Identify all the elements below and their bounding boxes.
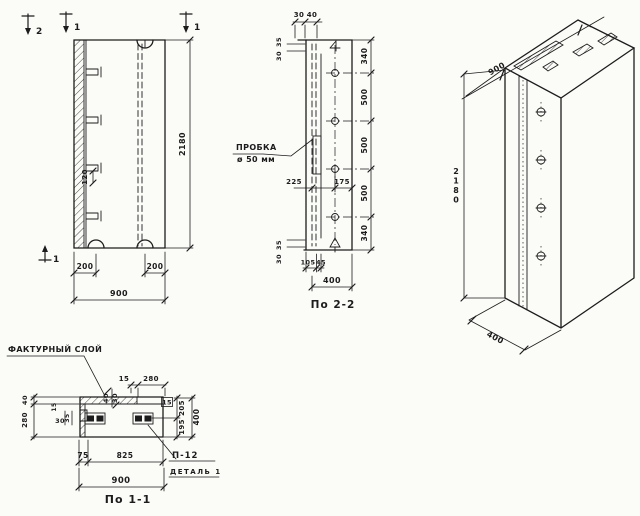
dim-elevation-bottom: 200 200 900 [71, 252, 168, 304]
dim-plug-back-label: 175 [334, 178, 350, 186]
panel-outline [74, 40, 165, 248]
dim-layer-b-label: 30 [111, 393, 119, 403]
channel-p12-left [85, 413, 105, 424]
dim-joint-a-label: 15 [51, 402, 58, 411]
section22-title: По 2-2 [311, 299, 356, 311]
iso-lift-slot-2 [598, 33, 617, 45]
dim-notch-right-label: 200 [147, 262, 164, 271]
section-marker-2-top: 2 [22, 14, 43, 37]
plug-label-line2: ø 50 мм [237, 155, 275, 164]
bottom-notches [88, 240, 153, 248]
plug-callout: ПРОБКА ø 50 мм [233, 139, 313, 164]
iso-dim-height: 2180 [452, 70, 506, 301]
iso-top-face [505, 20, 634, 98]
iso-dim-width: 900 [462, 17, 604, 99]
dim-top-b-label: 40 [307, 11, 318, 19]
dim-right-b-label: 195 [178, 419, 186, 435]
dim-hook-spacing: 120 [81, 168, 96, 186]
dim-notch-left-label: 200 [77, 262, 94, 271]
iso-lift-slot-3 [543, 61, 558, 71]
detail-name-label: ДЕТАЛЬ 1 [170, 468, 222, 476]
drawing-sheet: 120 2180 200 200 900 2 1 1 [0, 0, 640, 516]
dim-top-row: 15 280 [119, 375, 168, 397]
texture-leader-line [7, 356, 106, 398]
dim-top-gap-label: 15 [119, 375, 130, 383]
dim-corner-bot-b-label: 35 [275, 240, 283, 250]
chain-label-1: 500 [360, 89, 369, 106]
marker-1-right-label: 1 [194, 23, 201, 33]
dim-layer-thickness: 40 30 [102, 388, 119, 408]
chain-label-4: 340 [360, 225, 369, 242]
dim-ref-box: 15 [162, 398, 173, 407]
section-marker-1-left: 1 [60, 12, 81, 33]
texture-layer-callout: ФАКТУРНЫЙ СЛОЙ [7, 343, 106, 398]
dim-corner-bot-a-label: 30 [275, 254, 283, 264]
plug-sleeve [313, 136, 321, 174]
section11-title: По 1-1 [105, 493, 151, 506]
dim-right-total-label: 400 [192, 409, 201, 426]
texture-layer-label: ФАКТУРНЫЙ СЛОЙ [8, 343, 102, 354]
dim-left-a-label: 40 [21, 395, 29, 405]
chain-label-0: 340 [360, 48, 369, 65]
dim-chain-right: 340 500 500 500 340 [352, 37, 374, 253]
section-1-1-view: ФАКТУРНЫЙ СЛОЙ 15 40 280 [7, 343, 222, 506]
dim-depth-label: 400 [323, 276, 341, 285]
dim-foot: 105 45 [301, 252, 326, 272]
dim-top-span-label: 280 [143, 375, 159, 383]
section-marker-2-bottom: 1 [39, 245, 60, 265]
iso-plug-holes [536, 102, 546, 266]
anchor-hooks [86, 67, 101, 221]
dim-right-column: 205 195 400 [152, 395, 201, 440]
dim-left-b-label: 280 [21, 412, 29, 428]
chain-label-3: 500 [360, 185, 369, 202]
dim-joint-c-label: 35 [64, 413, 71, 422]
plug-label-line1: ПРОБКА [236, 143, 277, 152]
dim-hook-label: 120 [81, 169, 89, 185]
dim-joint-details: 15 30 35 [51, 402, 72, 425]
dim-right-a-label: 205 [178, 400, 186, 416]
chain-label-2: 500 [360, 137, 369, 154]
dim-bottom-rows: 75 825 900 [76, 440, 167, 491]
dim-foot-b-label: 45 [316, 259, 326, 267]
isometric-view: 900 2180 400 [452, 17, 635, 354]
blueprint-svg: 120 2180 200 200 900 2 1 1 [0, 0, 640, 516]
section-marker-1-right: 1 [180, 12, 201, 33]
dim-width-label: 900 [110, 289, 128, 298]
iso-dim-depth: 400 [468, 300, 561, 354]
dim-plug-front-label: 225 [286, 178, 302, 186]
texture-layer-strip [74, 40, 84, 248]
dim-bottom-a-label: 75 [77, 451, 88, 460]
iso-dim-depth-label: 400 [485, 330, 505, 346]
marker-2-top-label: 2 [36, 27, 43, 37]
joint-face-hatch [80, 404, 85, 437]
marker-2-bottom-label: 1 [53, 255, 60, 265]
dim-corner-top-b-label: 35 [275, 37, 283, 47]
dim-top-rib: 30 40 [292, 11, 322, 38]
dim-bottom-b-label: 825 [117, 451, 134, 460]
dim-foot-a-label: 105 [301, 259, 316, 267]
dim-elevation-height: 2180 [165, 37, 193, 251]
joint-dashed-lines [138, 44, 142, 246]
dim-layer-a-label: 40 [102, 393, 110, 403]
section-2-2-view: 340 500 500 500 340 30 40 30 35 30 35 22… [233, 11, 374, 311]
dim-ref-box-label: 15 [162, 399, 172, 407]
dim-top-a-label: 30 [294, 11, 305, 19]
iso-dim-height-label: 2180 [452, 167, 461, 205]
iso-body-edges [505, 48, 634, 328]
marker-1-left-label: 1 [74, 23, 81, 33]
dim-corner-top-a-label: 30 [275, 51, 283, 61]
channel-p12-right [133, 413, 153, 424]
detail-code-label: П-12 [172, 451, 198, 461]
dim-bottom-total-label: 900 [112, 476, 131, 486]
dim-height-label: 2180 [178, 132, 187, 156]
iso-lift-slot-1 [573, 44, 593, 56]
elevation-view: 120 2180 200 200 900 2 1 1 [22, 12, 201, 304]
